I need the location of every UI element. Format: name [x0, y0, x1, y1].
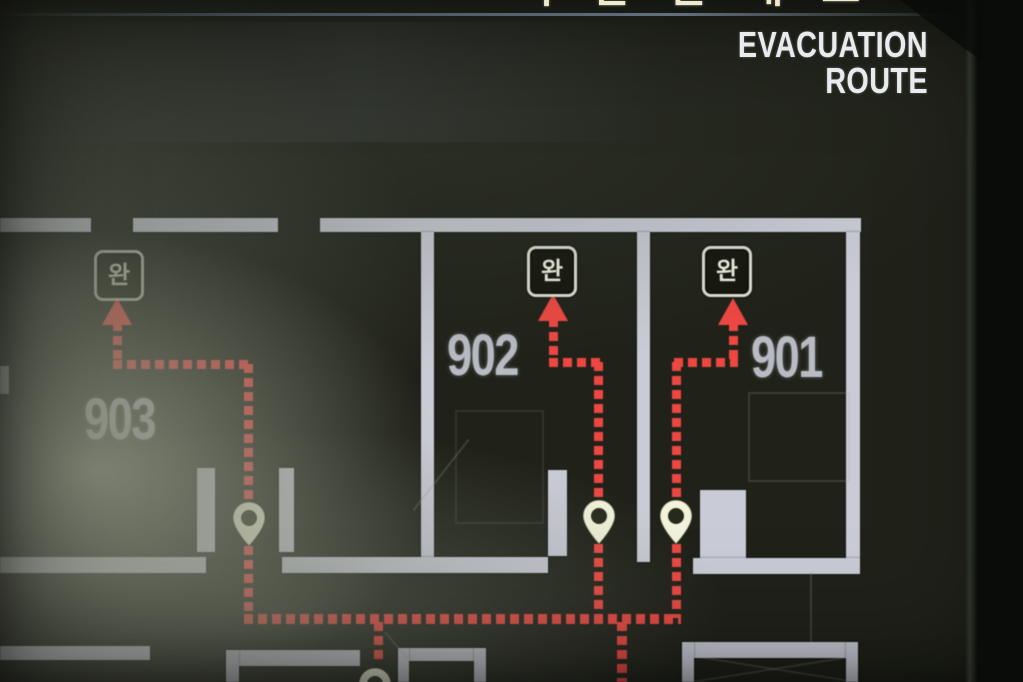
door-jamb	[700, 490, 746, 558]
evacuation-route-title: EVACUATION ROUTE	[634, 27, 928, 99]
door-pin-icon	[231, 501, 267, 547]
door-jamb	[197, 468, 215, 552]
route-segment-901	[729, 322, 738, 362]
sign-title-korean: 피난안내도	[515, 0, 898, 9]
route-segment-901	[674, 358, 738, 367]
brace-line	[694, 658, 846, 682]
door-pin-icon	[658, 499, 694, 545]
bathroom-outline	[455, 410, 544, 524]
room-label-901: 901	[751, 324, 822, 391]
route-segment-902	[549, 318, 558, 362]
route-arrow-up-901	[718, 298, 748, 325]
wall-segment	[320, 218, 861, 232]
wall-divider-902-901	[637, 232, 650, 562]
route-segment-903	[113, 360, 253, 369]
route-arrow-up-903	[102, 298, 132, 325]
stair-shaft-wall	[226, 650, 360, 666]
stair-shaft-wall	[398, 648, 486, 661]
stair-shaft-wall	[474, 648, 486, 682]
fixture-line	[384, 631, 407, 658]
route-segment-902	[594, 362, 603, 618]
exit-badge-903: 완	[94, 250, 144, 301]
wall-divider-903-902	[421, 232, 434, 558]
route-branch-down	[617, 622, 627, 682]
corridor-wall	[282, 557, 548, 573]
floor-plan: 완 완 완 903 902 901	[0, 0, 1023, 682]
door-pin-icon	[581, 499, 617, 545]
room-label-902: 902	[447, 322, 518, 389]
elevator-shaft-wall	[682, 642, 858, 658]
corridor-wall	[0, 646, 150, 660]
corridor-wall	[0, 557, 206, 573]
door-pin-icon	[357, 667, 393, 682]
closet-outline	[748, 392, 850, 482]
exit-badge-label: 완	[541, 260, 563, 284]
exit-badge-901: 완	[702, 246, 752, 297]
wall-segment	[0, 366, 9, 394]
route-branch-stairs	[374, 622, 383, 662]
route-arrow-up-902	[538, 294, 568, 321]
exit-badge-label: 완	[716, 260, 738, 284]
door-jamb	[548, 470, 567, 556]
route-trunk	[244, 614, 681, 624]
exit-badge-902: 완	[527, 246, 577, 297]
corridor-wall	[693, 558, 860, 574]
route-segment-901	[672, 362, 681, 618]
wall-segment	[133, 218, 278, 232]
header-divider-line	[0, 13, 938, 16]
elevator-shaft-wall	[846, 642, 858, 682]
evacuation-sign-photo: 완 완 완 903 902 901	[0, 0, 1023, 682]
room-label-903: 903	[84, 386, 155, 453]
route-segment-903	[113, 322, 122, 364]
fixture-line	[810, 572, 812, 642]
route-segment-903	[244, 364, 253, 618]
stair-shaft-wall	[226, 650, 239, 682]
wall-segment	[0, 218, 91, 232]
elevator-shaft-wall	[682, 642, 694, 682]
elevator-brace	[694, 658, 846, 682]
door-jamb	[279, 468, 294, 552]
exit-badge-label: 완	[108, 264, 130, 288]
sign-title-clipped: 피난안내도	[505, 0, 935, 13]
